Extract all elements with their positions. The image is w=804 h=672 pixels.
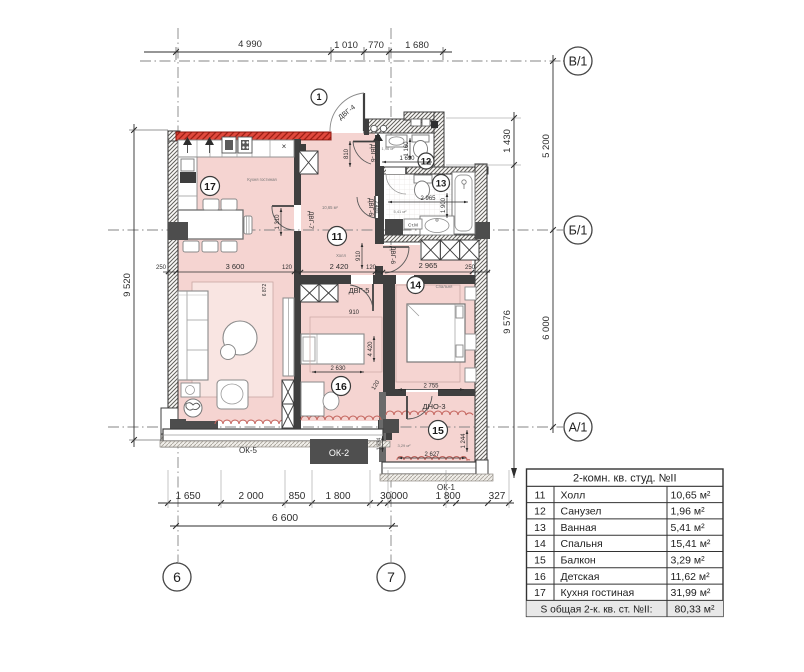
svg-text:Спальня: Спальня — [436, 284, 453, 289]
svg-text:31,99 м²: 31,99 м² — [671, 587, 711, 599]
svg-text:1 334: 1 334 — [377, 438, 383, 451]
svg-text:2 420: 2 420 — [330, 262, 349, 271]
svg-text:А/1: А/1 — [569, 420, 588, 434]
svg-text:2 000: 2 000 — [238, 491, 263, 502]
svg-text:16: 16 — [534, 571, 546, 583]
svg-text:6 000: 6 000 — [541, 316, 552, 340]
svg-text:ДВГ-6: ДВГ-6 — [389, 246, 396, 264]
svg-text:6: 6 — [173, 569, 181, 585]
svg-text:13: 13 — [436, 178, 447, 189]
svg-text:120: 120 — [366, 265, 377, 271]
svg-text:ДВГ-6: ДВГ-6 — [369, 144, 376, 162]
svg-text:7: 7 — [387, 569, 395, 585]
svg-text:ОК-2: ОК-2 — [329, 448, 349, 458]
svg-text:13: 13 — [534, 522, 546, 534]
svg-text:250: 250 — [156, 265, 167, 271]
svg-text:×: × — [282, 142, 287, 151]
svg-text:Холл: Холл — [561, 489, 586, 501]
svg-text:6 872: 6 872 — [262, 284, 268, 297]
svg-text:15: 15 — [534, 555, 546, 567]
svg-text:Санузел: Санузел — [561, 506, 602, 518]
svg-text:6 600: 6 600 — [272, 512, 298, 524]
svg-text:15: 15 — [432, 425, 444, 437]
svg-text:1: 1 — [316, 92, 321, 102]
svg-text:2 630: 2 630 — [330, 366, 346, 372]
svg-text:1 800: 1 800 — [325, 491, 350, 502]
svg-text:Б/1: Б/1 — [569, 223, 588, 237]
svg-text:2 965: 2 965 — [419, 261, 438, 270]
svg-text:14: 14 — [534, 538, 546, 550]
svg-text:2 755: 2 755 — [423, 384, 439, 390]
svg-text:ДВГ-6: ДВГ-6 — [367, 198, 374, 216]
svg-text:3,29 м²: 3,29 м² — [671, 555, 706, 567]
svg-text:Детская: Детская — [561, 571, 600, 583]
svg-text:15,41 м²: 15,41 м² — [671, 538, 711, 550]
svg-text:5,41 м²: 5,41 м² — [671, 522, 706, 534]
svg-text:4 990: 4 990 — [238, 39, 262, 50]
svg-text:2 400: 2 400 — [373, 201, 379, 214]
svg-text:910: 910 — [356, 250, 362, 261]
svg-text:80,33 м²: 80,33 м² — [675, 603, 715, 615]
svg-text:30000: 30000 — [380, 491, 408, 502]
svg-text:910: 910 — [349, 310, 360, 316]
svg-text:ОК-5: ОК-5 — [239, 446, 258, 455]
svg-text:120: 120 — [282, 265, 293, 271]
svg-text:1 900: 1 900 — [441, 197, 447, 213]
svg-text:Кухня гостиная: Кухня гостиная — [247, 177, 276, 182]
svg-text:5,41 м²: 5,41 м² — [394, 209, 408, 214]
svg-text:17: 17 — [534, 587, 546, 599]
svg-text:16: 16 — [335, 381, 347, 393]
svg-text:810: 810 — [344, 148, 350, 159]
svg-text:14: 14 — [410, 281, 422, 292]
svg-text:17: 17 — [204, 181, 216, 193]
svg-text:1 244: 1 244 — [461, 433, 467, 449]
svg-text:Кухня гостиная: Кухня гостиная — [561, 587, 635, 599]
svg-text:ДВГ-7: ДВГ-7 — [307, 211, 314, 229]
svg-text:ДНО-3: ДНО-3 — [423, 402, 446, 411]
svg-text:3,29 м²: 3,29 м² — [398, 443, 412, 448]
svg-text:12: 12 — [534, 506, 546, 518]
svg-text:11: 11 — [535, 489, 546, 501]
svg-text:1 310: 1 310 — [275, 214, 281, 230]
svg-text:Ванная: Ванная — [561, 522, 597, 534]
svg-text:1,96 м²: 1,96 м² — [671, 506, 706, 518]
svg-text:1 650: 1 650 — [175, 491, 200, 502]
svg-text:1,96 м²: 1,96 м² — [382, 146, 396, 151]
svg-text:11: 11 — [331, 231, 342, 243]
svg-text:S общая 2-к. кв. ст. №II:: S общая 2-к. кв. ст. №II: — [541, 603, 653, 615]
svg-text:Холл: Холл — [336, 253, 346, 258]
svg-text:Ст.М: Ст.М — [408, 223, 418, 228]
svg-text:ДВГ-5: ДВГ-5 — [349, 286, 370, 295]
svg-text:11,62 м²: 11,62 м² — [671, 571, 711, 583]
svg-text:1 160: 1 160 — [404, 141, 410, 157]
svg-text:5 200: 5 200 — [541, 134, 552, 158]
svg-text:10,65 м²: 10,65 м² — [322, 205, 339, 210]
svg-text:1 800: 1 800 — [435, 491, 460, 502]
svg-text:В/1: В/1 — [569, 54, 588, 68]
svg-text:850: 850 — [289, 491, 306, 502]
svg-text:10,65 м²: 10,65 м² — [671, 489, 711, 501]
svg-text:2-комн. кв. студ. №II: 2-комн. кв. студ. №II — [573, 473, 677, 485]
svg-text:250: 250 — [465, 265, 476, 271]
svg-text:4 420: 4 420 — [368, 341, 374, 357]
svg-text:1 430: 1 430 — [502, 129, 513, 153]
svg-text:1 010: 1 010 — [334, 40, 358, 51]
svg-text:Спальня: Спальня — [561, 538, 603, 550]
svg-text:770: 770 — [368, 40, 384, 51]
svg-text:Балкон: Балкон — [561, 555, 596, 567]
svg-text:1 680: 1 680 — [405, 40, 429, 51]
svg-text:9 520: 9 520 — [122, 273, 133, 297]
svg-text:2 627: 2 627 — [424, 452, 440, 458]
svg-text:3 600: 3 600 — [226, 262, 245, 271]
svg-text:9 576: 9 576 — [502, 310, 513, 334]
svg-text:2 965: 2 965 — [420, 196, 436, 202]
svg-text:327: 327 — [489, 491, 506, 502]
